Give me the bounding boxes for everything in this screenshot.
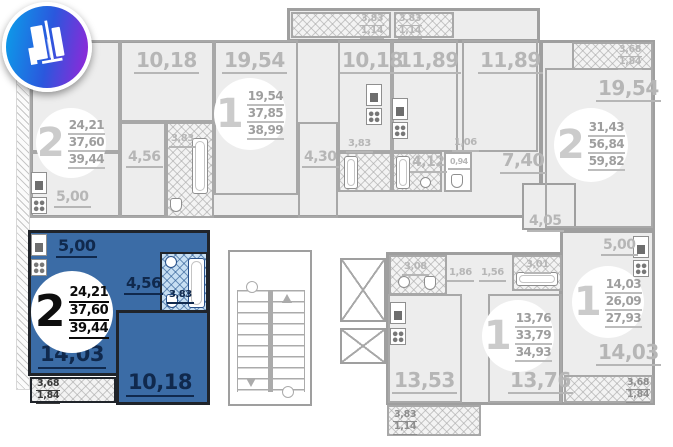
- stair-flight: [272, 290, 305, 392]
- balcony-area-label: 3,68 1,84: [618, 45, 642, 70]
- stair-post: [282, 386, 294, 398]
- room-area-label: 0,94: [448, 158, 470, 170]
- elevator-shaft-icon: [340, 328, 386, 364]
- room-area-label: 7,40: [500, 152, 546, 174]
- apartment-total-area: 38,99: [247, 123, 284, 140]
- room-area-label: 5,00: [56, 238, 97, 258]
- apartment-total-area: 34,93: [515, 345, 552, 362]
- apartment-number: 1: [216, 94, 244, 134]
- apartment-total-area: 27,93: [605, 311, 642, 328]
- room-area-label: 5,00: [54, 190, 91, 208]
- toilet-icon: [424, 276, 436, 290]
- balcony-area-label: 3,83 1,14: [393, 410, 417, 435]
- room-area-label: 11,89: [396, 50, 461, 74]
- room-area-label: 4,56: [126, 150, 163, 168]
- logo-building-icon: [17, 17, 77, 77]
- hob-icon: [31, 259, 47, 276]
- apartment-number: 2: [557, 125, 585, 165]
- bathtub-icon: [344, 156, 358, 189]
- elevator-shaft-icon: [340, 258, 386, 322]
- room-tc-hall: [298, 122, 338, 218]
- stove-icon: [366, 84, 382, 106]
- hob-icon: [390, 328, 406, 345]
- floor-plan: 3,83 1,14 3,83 1,14 3,68 1,84: [0, 0, 673, 447]
- stair-flight: [237, 290, 270, 392]
- room-area-label: 5,00: [601, 238, 638, 256]
- apartment-total-area: 39,44: [69, 321, 110, 339]
- room-area-label: 3,01: [524, 260, 551, 274]
- apartment-badge-top-center[interactable]: 1 19,54 37,85 38,99: [214, 78, 286, 150]
- balcony-reduced-area: 1,14: [393, 422, 417, 434]
- hob-icon: [31, 197, 47, 214]
- room-area-label: 1,86: [447, 268, 474, 282]
- room-area-label: 10,18: [134, 50, 199, 74]
- room-area-label: 13,76: [508, 370, 573, 394]
- room-area-label: 19,54: [222, 50, 287, 74]
- room-area-label: 3,83: [169, 134, 196, 148]
- apartment-badge-selected[interactable]: 2 24,21 37,60 39,44: [31, 271, 113, 353]
- apartment-total-area: 39,44: [68, 152, 105, 169]
- room-area-label: 19,54: [596, 78, 661, 102]
- apartment-living-area: 14,03: [605, 277, 642, 294]
- balcony-area-label: 3,68 1,84: [626, 378, 650, 403]
- hob-icon: [392, 122, 408, 139]
- room-area-label: 10,18: [126, 372, 194, 397]
- stair-down-arrow: [246, 378, 256, 387]
- balcony-area-label: 3,83 1,14: [360, 14, 384, 39]
- room-area-label: 1,06: [452, 138, 479, 152]
- apartment-living-area: 24,21: [68, 118, 105, 135]
- sink-icon: [165, 256, 177, 268]
- stove-icon: [31, 234, 47, 256]
- stove-icon: [31, 172, 47, 194]
- room-area-label: 3,08: [402, 262, 429, 276]
- room-area-label: 3,83: [167, 290, 194, 304]
- toilet-icon: [170, 198, 182, 212]
- apartment-floor-area: 56,84: [588, 137, 625, 154]
- apartment-living-area: 13,76: [515, 311, 552, 328]
- room-area-label: 4,12: [410, 155, 447, 173]
- room-area-label: 4,56: [124, 276, 163, 295]
- balcony-area-label: 3,83 1,14: [398, 14, 422, 39]
- apartment-floor-area: 37,60: [68, 135, 105, 152]
- toilet-icon: [451, 174, 463, 188]
- sink-icon: [398, 276, 410, 288]
- bathtub-icon: [396, 156, 410, 189]
- room-area-label: 4,05: [527, 214, 564, 232]
- apartment-badge-bottom-right[interactable]: 1 14,03 26,09 27,93: [572, 266, 644, 338]
- apartment-number: 2: [37, 123, 65, 163]
- hob-icon: [366, 108, 382, 125]
- apartment-living-area: 19,54: [247, 89, 284, 106]
- hob-icon: [633, 260, 649, 277]
- apartment-floor-area: 26,09: [605, 294, 642, 311]
- apartment-floor-area: 33,79: [515, 328, 552, 345]
- developer-logo[interactable]: [2, 2, 92, 92]
- balcony-area-label: 3,68 1,84: [36, 379, 60, 404]
- stair-up-arrow: [282, 294, 292, 303]
- stove-icon: [392, 98, 408, 120]
- balcony-reduced-area: 1,14: [360, 26, 384, 38]
- balcony-reduced-area: 1,84: [618, 57, 642, 69]
- room-tl-hall: [120, 122, 166, 218]
- room-area-label: 1,56: [479, 268, 506, 282]
- room-area-label: 3,83: [346, 139, 373, 153]
- apartment-floor-area: 37,60: [69, 303, 110, 321]
- apartment-badge-top-right[interactable]: 2 31,43 56,84 59,82: [554, 108, 628, 182]
- sink-icon: [420, 177, 431, 188]
- apartment-floor-area: 37,85: [247, 106, 284, 123]
- apartment-total-area: 59,82: [588, 154, 625, 171]
- balcony-reduced-area: 1,84: [36, 391, 60, 403]
- balcony-reduced-area: 1,84: [626, 390, 650, 402]
- apartment-number: 2: [35, 290, 66, 334]
- stair-rail: [268, 290, 272, 392]
- apartment-living-area: 24,21: [69, 285, 110, 303]
- stair-post: [246, 281, 258, 293]
- bathtub-icon: [516, 272, 558, 286]
- apartment-badge-top-left[interactable]: 2 24,21 37,60 39,44: [36, 108, 106, 178]
- apartment-badge-bottom-center[interactable]: 1 13,76 33,79 34,93: [482, 300, 554, 372]
- apartment-number: 1: [484, 316, 512, 356]
- apartment-living-area: 31,43: [588, 120, 625, 137]
- room-area-label: 11,89: [478, 50, 543, 74]
- balcony-reduced-area: 1,14: [398, 26, 422, 38]
- room-area-label: 14,03: [596, 342, 661, 366]
- stove-icon: [390, 302, 406, 324]
- room-area-label: 4,30: [302, 150, 339, 168]
- room-area-label: 13,53: [392, 370, 457, 394]
- apartment-number: 1: [574, 282, 602, 322]
